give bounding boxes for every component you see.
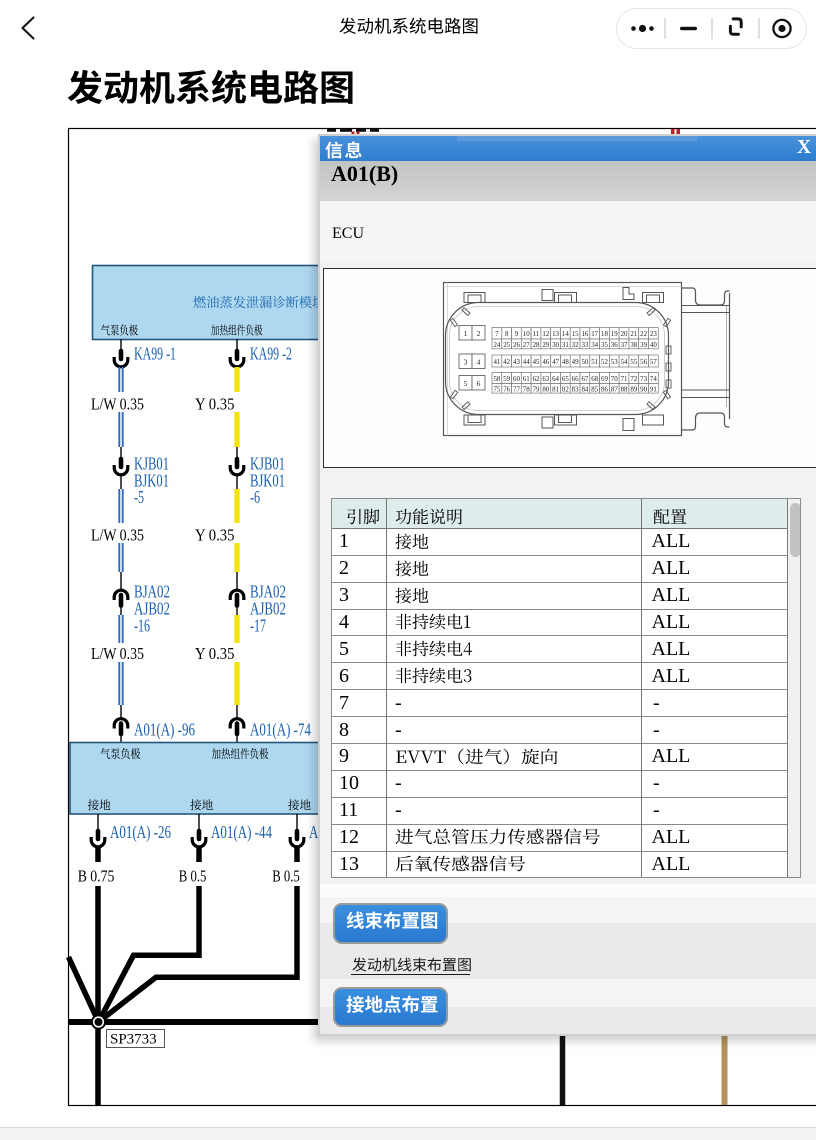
- svg-text:49: 49: [572, 359, 579, 366]
- svg-text:57: 57: [650, 359, 657, 366]
- svg-text:77: 77: [513, 386, 520, 393]
- svg-text:61: 61: [523, 376, 530, 383]
- svg-text:23: 23: [650, 331, 657, 338]
- svg-text:KA99 -1: KA99 -1: [134, 344, 176, 364]
- svg-text:81: 81: [552, 386, 559, 393]
- svg-text:86: 86: [601, 386, 608, 393]
- svg-text:60: 60: [513, 376, 520, 383]
- svg-text:59: 59: [503, 376, 510, 383]
- svg-text:B 0.75: B 0.75: [78, 867, 115, 886]
- svg-text:SP3733: SP3733: [110, 1032, 157, 1048]
- svg-text:56: 56: [640, 359, 647, 366]
- svg-text:41: 41: [493, 359, 500, 366]
- svg-text:9: 9: [515, 331, 519, 338]
- svg-text:40: 40: [650, 342, 657, 349]
- svg-text:Y 0.35: Y 0.35: [195, 644, 235, 663]
- svg-text:27: 27: [523, 342, 530, 349]
- svg-text:68: 68: [591, 376, 598, 383]
- svg-text:-17: -17: [250, 616, 266, 636]
- svg-text:78: 78: [523, 386, 530, 393]
- svg-text:84: 84: [581, 386, 588, 393]
- svg-text:A01(A) -74: A01(A) -74: [250, 720, 311, 740]
- svg-text:66: 66: [572, 376, 579, 383]
- svg-text:32: 32: [572, 342, 579, 349]
- svg-text:10: 10: [523, 331, 530, 338]
- svg-text:A01(A) -96: A01(A) -96: [134, 720, 195, 740]
- svg-text:22: 22: [640, 331, 647, 338]
- svg-text:3: 3: [464, 358, 468, 367]
- svg-text:48: 48: [562, 359, 569, 366]
- svg-text:87: 87: [611, 386, 618, 393]
- svg-text:6: 6: [477, 379, 481, 388]
- svg-text:91: 91: [650, 386, 657, 393]
- svg-text:Y 0.35: Y 0.35: [195, 395, 235, 414]
- svg-text:7: 7: [495, 331, 499, 338]
- svg-text:17: 17: [591, 331, 598, 338]
- svg-text:-5: -5: [134, 487, 144, 507]
- svg-text:34: 34: [591, 342, 598, 349]
- svg-text:83: 83: [572, 386, 579, 393]
- svg-text:24: 24: [493, 342, 500, 349]
- svg-text:53: 53: [611, 359, 618, 366]
- svg-text:52: 52: [601, 359, 608, 366]
- svg-text:88: 88: [621, 386, 628, 393]
- svg-text:18: 18: [601, 331, 608, 338]
- svg-text:L/W 0.35: L/W 0.35: [91, 526, 144, 545]
- svg-text:73: 73: [640, 376, 647, 383]
- svg-text:13: 13: [552, 331, 559, 338]
- svg-text:-6: -6: [250, 487, 260, 507]
- svg-text:64: 64: [552, 376, 559, 383]
- svg-text:58: 58: [493, 376, 500, 383]
- svg-text:A01(A) -44: A01(A) -44: [211, 822, 272, 842]
- svg-text:21: 21: [630, 331, 637, 338]
- svg-text:L/W 0.35: L/W 0.35: [91, 395, 144, 414]
- svg-text:44: 44: [523, 359, 530, 366]
- svg-text:KA99 -2: KA99 -2: [250, 344, 292, 364]
- svg-text:85: 85: [591, 386, 598, 393]
- svg-text:45: 45: [533, 359, 540, 366]
- svg-text:82: 82: [562, 386, 569, 393]
- svg-text:37: 37: [621, 342, 628, 349]
- svg-text:A01(A) -26: A01(A) -26: [110, 822, 171, 842]
- svg-text:67: 67: [581, 376, 588, 383]
- svg-text:42: 42: [503, 359, 510, 366]
- svg-text:20: 20: [621, 331, 628, 338]
- svg-text:46: 46: [542, 359, 549, 366]
- svg-text:62: 62: [533, 376, 540, 383]
- svg-text:15: 15: [572, 331, 579, 338]
- svg-text:28: 28: [533, 342, 540, 349]
- svg-text:38: 38: [630, 342, 637, 349]
- svg-text:31: 31: [562, 342, 569, 349]
- svg-text:79: 79: [533, 386, 540, 393]
- svg-text:65: 65: [562, 376, 569, 383]
- svg-text:30: 30: [552, 342, 559, 349]
- svg-text:L/W 0.35: L/W 0.35: [91, 644, 144, 663]
- svg-text:43: 43: [513, 359, 520, 366]
- svg-text:90: 90: [640, 386, 647, 393]
- svg-text:16: 16: [581, 331, 588, 338]
- svg-text:8: 8: [505, 331, 509, 338]
- svg-text:11: 11: [533, 331, 540, 338]
- svg-text:26: 26: [513, 342, 520, 349]
- svg-text:5: 5: [464, 379, 468, 388]
- svg-text:29: 29: [542, 342, 549, 349]
- svg-text:50: 50: [581, 359, 588, 366]
- svg-text:63: 63: [542, 376, 549, 383]
- svg-text:B 0.5: B 0.5: [179, 867, 207, 886]
- svg-text:72: 72: [630, 376, 637, 383]
- svg-text:-16: -16: [134, 616, 150, 636]
- svg-text:47: 47: [552, 359, 559, 366]
- svg-text:80: 80: [542, 386, 549, 393]
- svg-text:54: 54: [621, 359, 628, 366]
- svg-text:75: 75: [493, 386, 500, 393]
- svg-text:39: 39: [640, 342, 647, 349]
- svg-text:12: 12: [542, 331, 549, 338]
- svg-text:35: 35: [601, 342, 608, 349]
- svg-text:25: 25: [503, 342, 510, 349]
- svg-text:B 0.5: B 0.5: [272, 867, 300, 886]
- svg-text:19: 19: [611, 331, 618, 338]
- svg-text:70: 70: [611, 376, 618, 383]
- svg-text:Y 0.35: Y 0.35: [195, 526, 235, 545]
- svg-text:14: 14: [562, 331, 569, 338]
- svg-text:89: 89: [630, 386, 637, 393]
- svg-text:74: 74: [650, 376, 657, 383]
- svg-text:33: 33: [581, 342, 588, 349]
- svg-text:1: 1: [464, 329, 468, 338]
- svg-text:69: 69: [601, 376, 608, 383]
- svg-text:2: 2: [477, 329, 481, 338]
- svg-text:55: 55: [630, 359, 637, 366]
- svg-text:36: 36: [611, 342, 618, 349]
- svg-text:51: 51: [591, 359, 598, 366]
- svg-text:4: 4: [477, 358, 481, 367]
- svg-text:71: 71: [621, 376, 628, 383]
- svg-text:76: 76: [503, 386, 510, 393]
